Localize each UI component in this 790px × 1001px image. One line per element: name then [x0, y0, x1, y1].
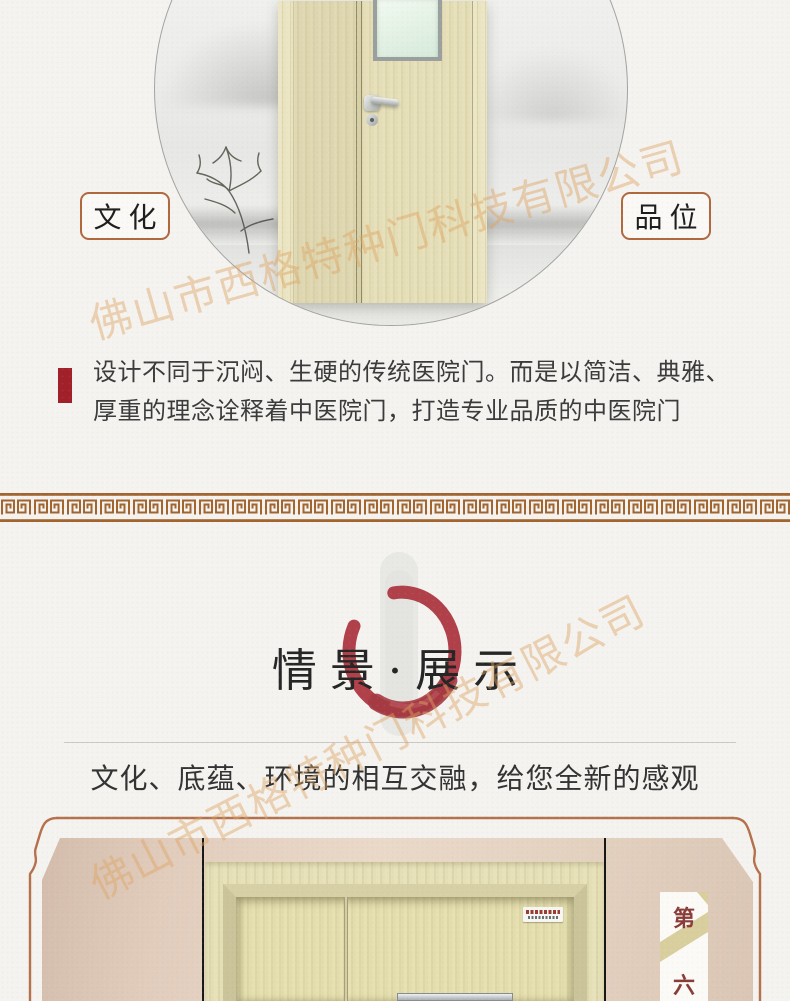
- door-leaf-narrow: [293, 1, 357, 303]
- door-jamb-right: [472, 1, 487, 303]
- meander-border: [0, 493, 790, 522]
- intro-paragraph: 设计不同于沉闷、生硬的传统医院门。而是以简洁、典雅、 厚重的理念诠释着中医院门，…: [93, 353, 755, 431]
- hero-label-taste: 品位: [621, 192, 711, 240]
- hero-label-culture: 文化: [80, 192, 170, 240]
- door-vision-window: [373, 0, 442, 61]
- accent-bar: [58, 368, 72, 403]
- hero-label-taste-text: 品位: [627, 196, 704, 236]
- floor-strip: [155, 303, 627, 326]
- hero-circle-photo: [154, 0, 628, 326]
- hospital-door-image: [278, 1, 487, 303]
- showcase-frame-outline: [0, 805, 790, 1001]
- section-divider: [64, 742, 736, 743]
- hero-label-culture-text: 文化: [86, 196, 163, 236]
- product-detail-page: 文化 品位 设计不同于沉闷、生硬的传统医院门。而是以简洁、典雅、 厚重的理念诠释…: [0, 0, 790, 1001]
- section-title: 情景·展示: [0, 634, 790, 699]
- door-jamb-left: [278, 1, 294, 303]
- intro-line-2: 厚重的理念诠释着中医院门，打造专业品质的中医院门: [93, 392, 755, 431]
- section-subtitle: 文化、底蕴、环境的相互交融，给您全新的感观: [0, 757, 790, 797]
- door-stile-line: [356, 1, 362, 303]
- intro-line-1: 设计不同于沉闷、生硬的传统医院门。而是以简洁、典雅、: [93, 353, 755, 392]
- landscape-mountain-right: [473, 49, 628, 121]
- door-lock-cylinder-icon: [366, 114, 378, 126]
